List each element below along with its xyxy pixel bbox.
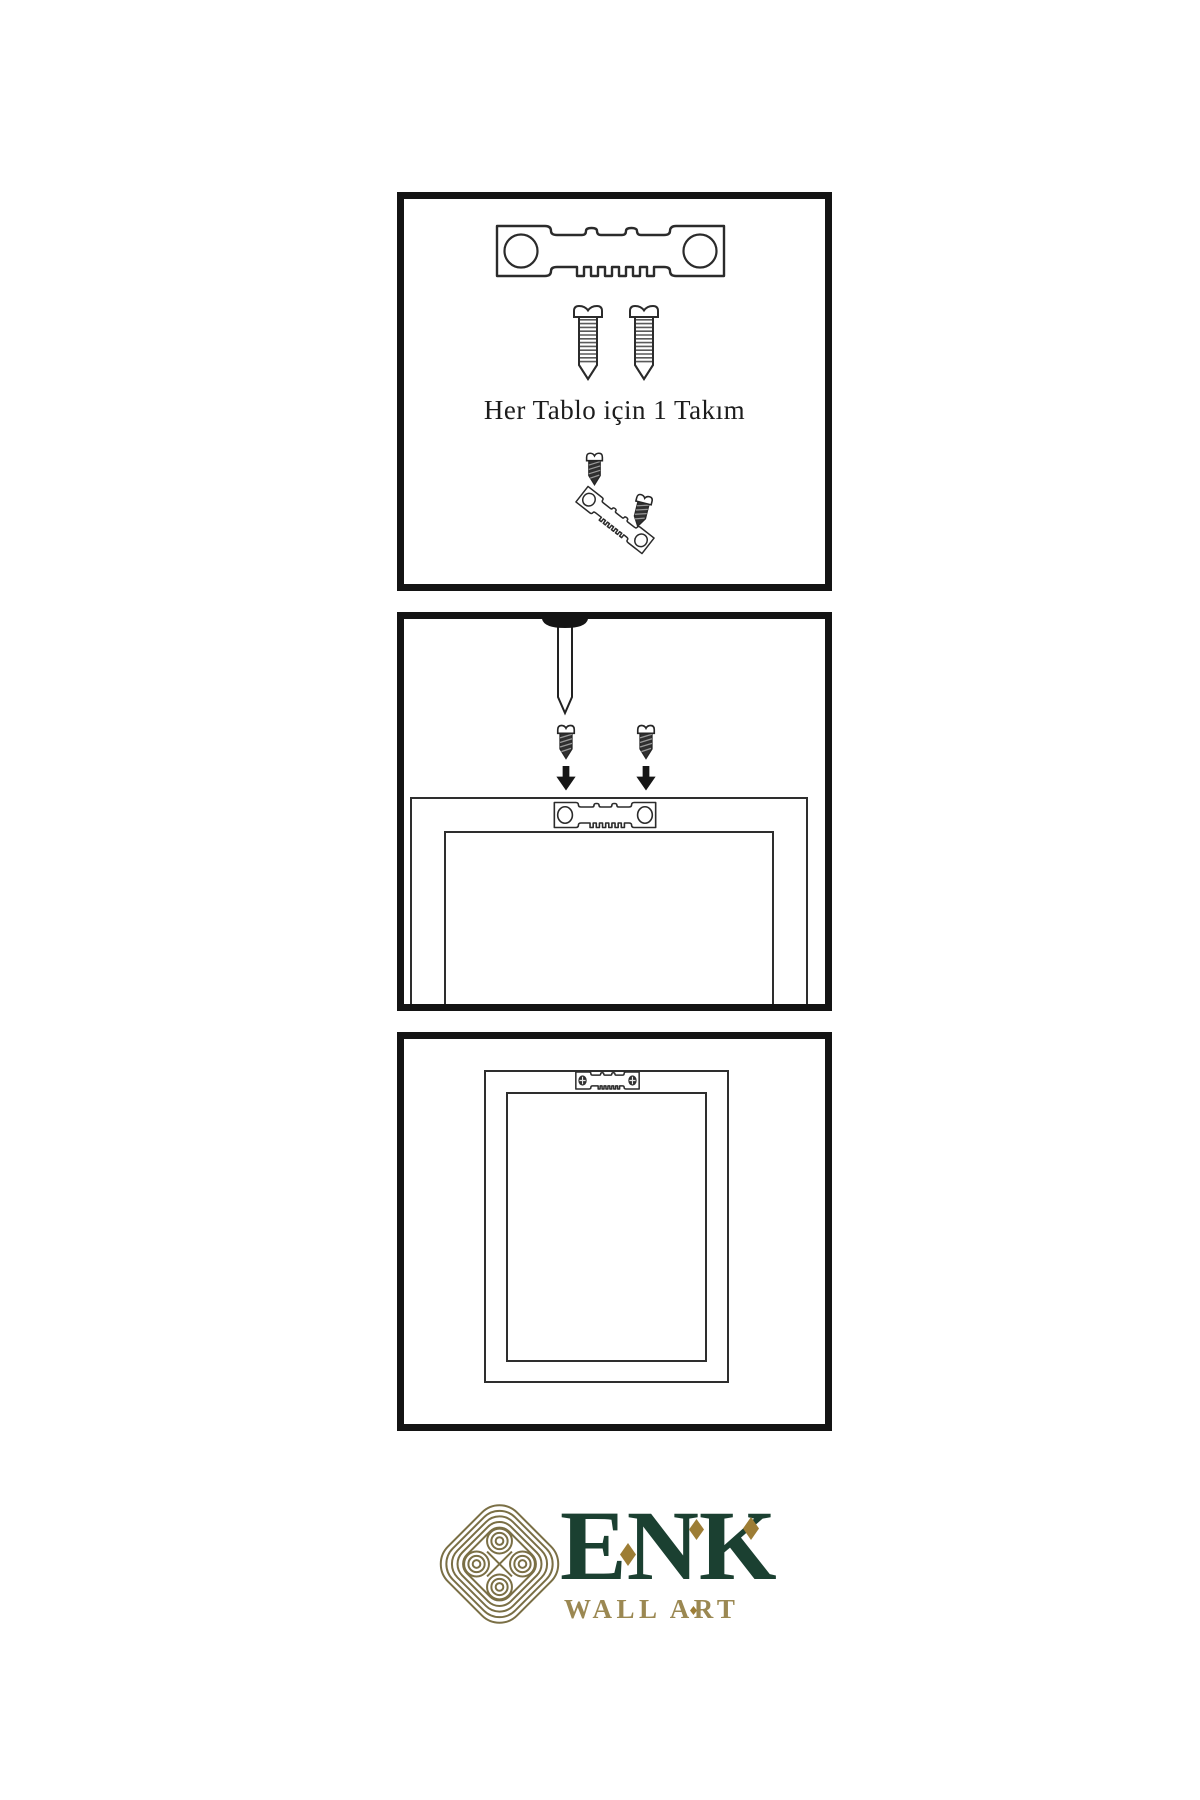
- dark-screw-icon: [584, 451, 605, 487]
- arrow-down-icon: [555, 766, 577, 791]
- brand-name: ENK: [560, 1498, 777, 1594]
- nail-icon: [541, 619, 589, 719]
- panel-hardware-kit: Her Tablo için 1 Takım: [397, 192, 832, 591]
- instruction-sheet: Her Tablo için 1 Takım: [0, 0, 1200, 1800]
- assembly-illustration: [404, 199, 825, 584]
- logo: ENK WALL ART: [437, 1497, 767, 1637]
- dark-screw-icon: [635, 722, 657, 762]
- frame-back-inner: [506, 1092, 707, 1362]
- brand-subtitle: WALL ART: [564, 1594, 739, 1625]
- sawtooth-hanger-with-screws-icon: [575, 1071, 640, 1090]
- frame-back-inner: [444, 831, 774, 1011]
- panel-wall-mounting: [397, 612, 832, 1011]
- celtic-knot-icon: [437, 1497, 562, 1631]
- arrow-down-icon: [635, 766, 657, 791]
- dark-screw-icon: [627, 491, 656, 531]
- panel-hung-frame: [397, 1032, 832, 1431]
- dark-screw-icon: [555, 722, 577, 762]
- sawtooth-hanger-on-frame-icon: [553, 801, 657, 829]
